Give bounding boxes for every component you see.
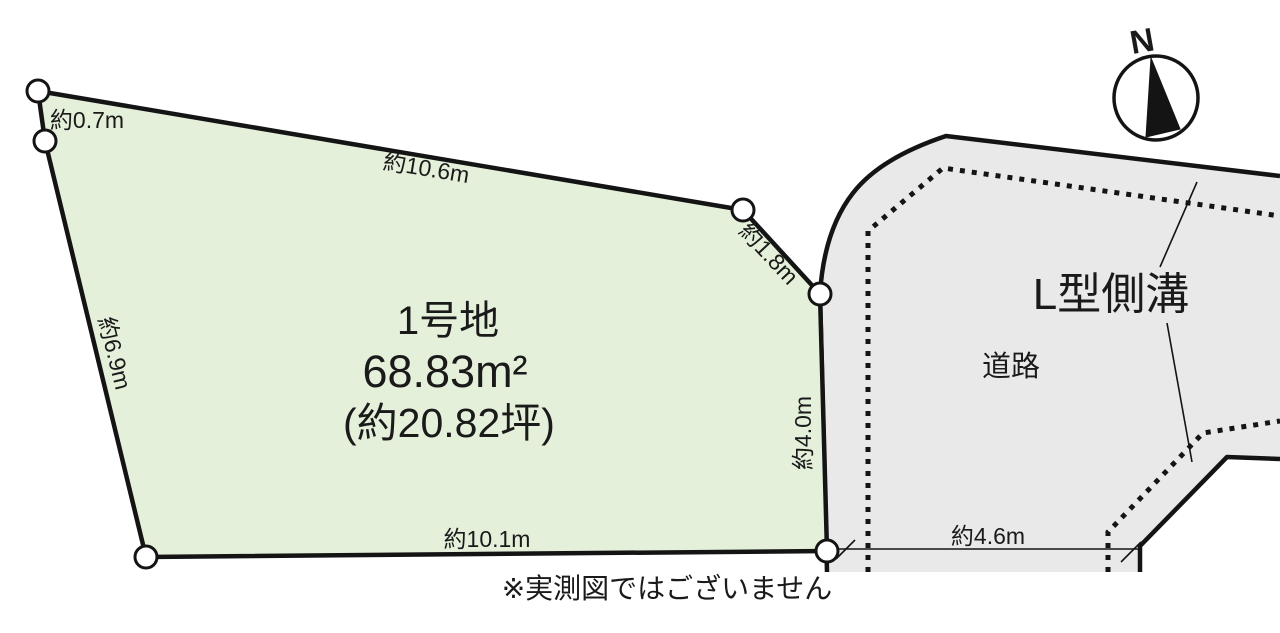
vertex-marker [27, 80, 49, 102]
vertex-marker [732, 199, 754, 221]
road-label: 道路 [982, 350, 1040, 383]
road-width-label: 約4.6m [951, 523, 1025, 549]
dim-label-right: 約4.0m [790, 396, 816, 470]
plot-name-label: 1号地 [397, 299, 499, 343]
site-plan-canvas: 約0.7m 約10.6m 約1.8m 約6.9m 約4.0m 約10.1m 約4… [0, 0, 1280, 633]
disclaimer-note: ※実測図ではございません [502, 573, 833, 604]
north-compass: N [1114, 20, 1198, 140]
dim-label-bottom: 約10.1m [444, 526, 531, 552]
gutter-label: L型側溝 [1033, 270, 1189, 319]
site-plan-diagram: 約0.7m 約10.6m 約1.8m 約6.9m 約4.0m 約10.1m 約4… [0, 0, 1280, 633]
plot-area-m2-label: 68.83m² [362, 346, 527, 397]
vertex-marker [809, 283, 831, 305]
vertex-marker [135, 546, 157, 568]
plot-area-tsubo-label: (約20.82坪) [343, 400, 555, 446]
vertex-marker [816, 540, 838, 562]
vertex-marker [34, 130, 56, 152]
road-area-shape [820, 136, 1280, 572]
north-label: N [1127, 20, 1157, 61]
dim-label-top-left: 約0.7m [50, 107, 124, 133]
